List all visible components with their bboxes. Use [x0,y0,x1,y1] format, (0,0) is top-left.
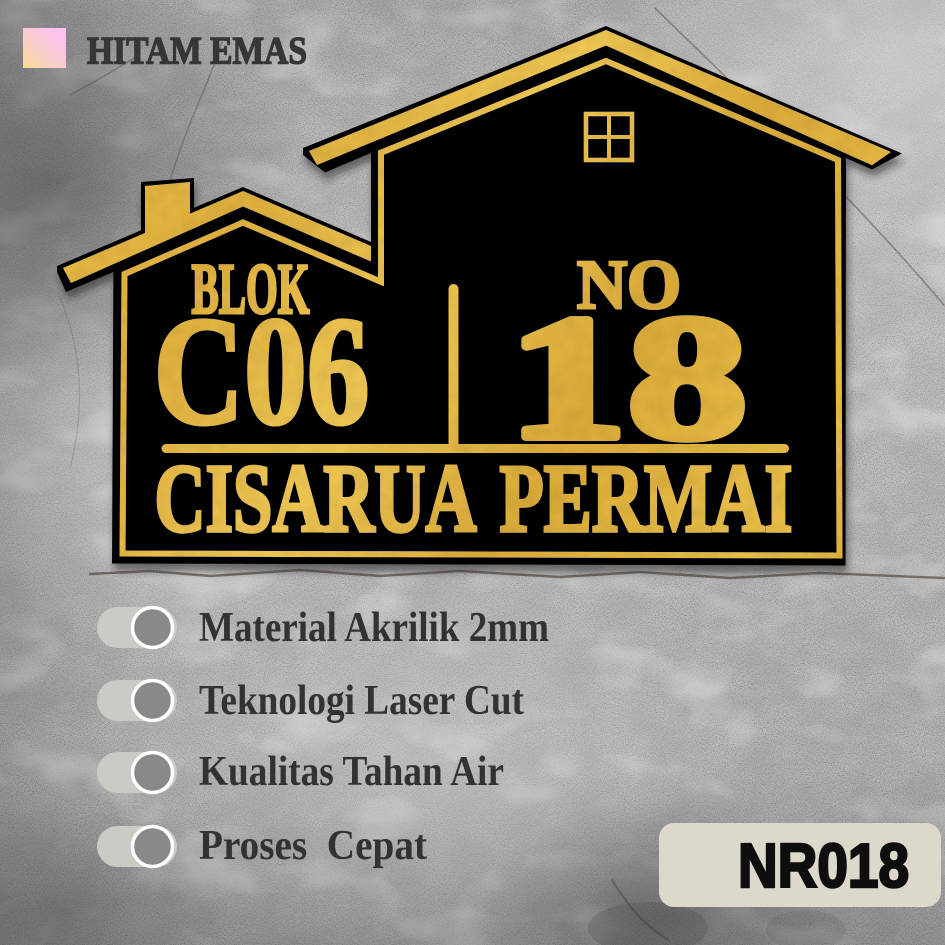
svg-text:Kualitas Tahan Air: Kualitas Tahan Air [199,749,504,795]
svg-text:PERMAI: PERMAI [500,445,793,553]
svg-text:NR018: NR018 [738,832,909,901]
svg-text:HITAM EMAS: HITAM EMAS [87,30,307,73]
svg-text:Material Akrilik 2mm: Material Akrilik 2mm [199,605,549,651]
svg-text:Proses Cepat: Proses Cepat [199,823,427,869]
svg-text:Teknologi Laser Cut: Teknologi Laser Cut [199,678,524,724]
svg-text:CISARUA: CISARUA [155,445,477,553]
svg-text:C06: C06 [154,285,370,457]
